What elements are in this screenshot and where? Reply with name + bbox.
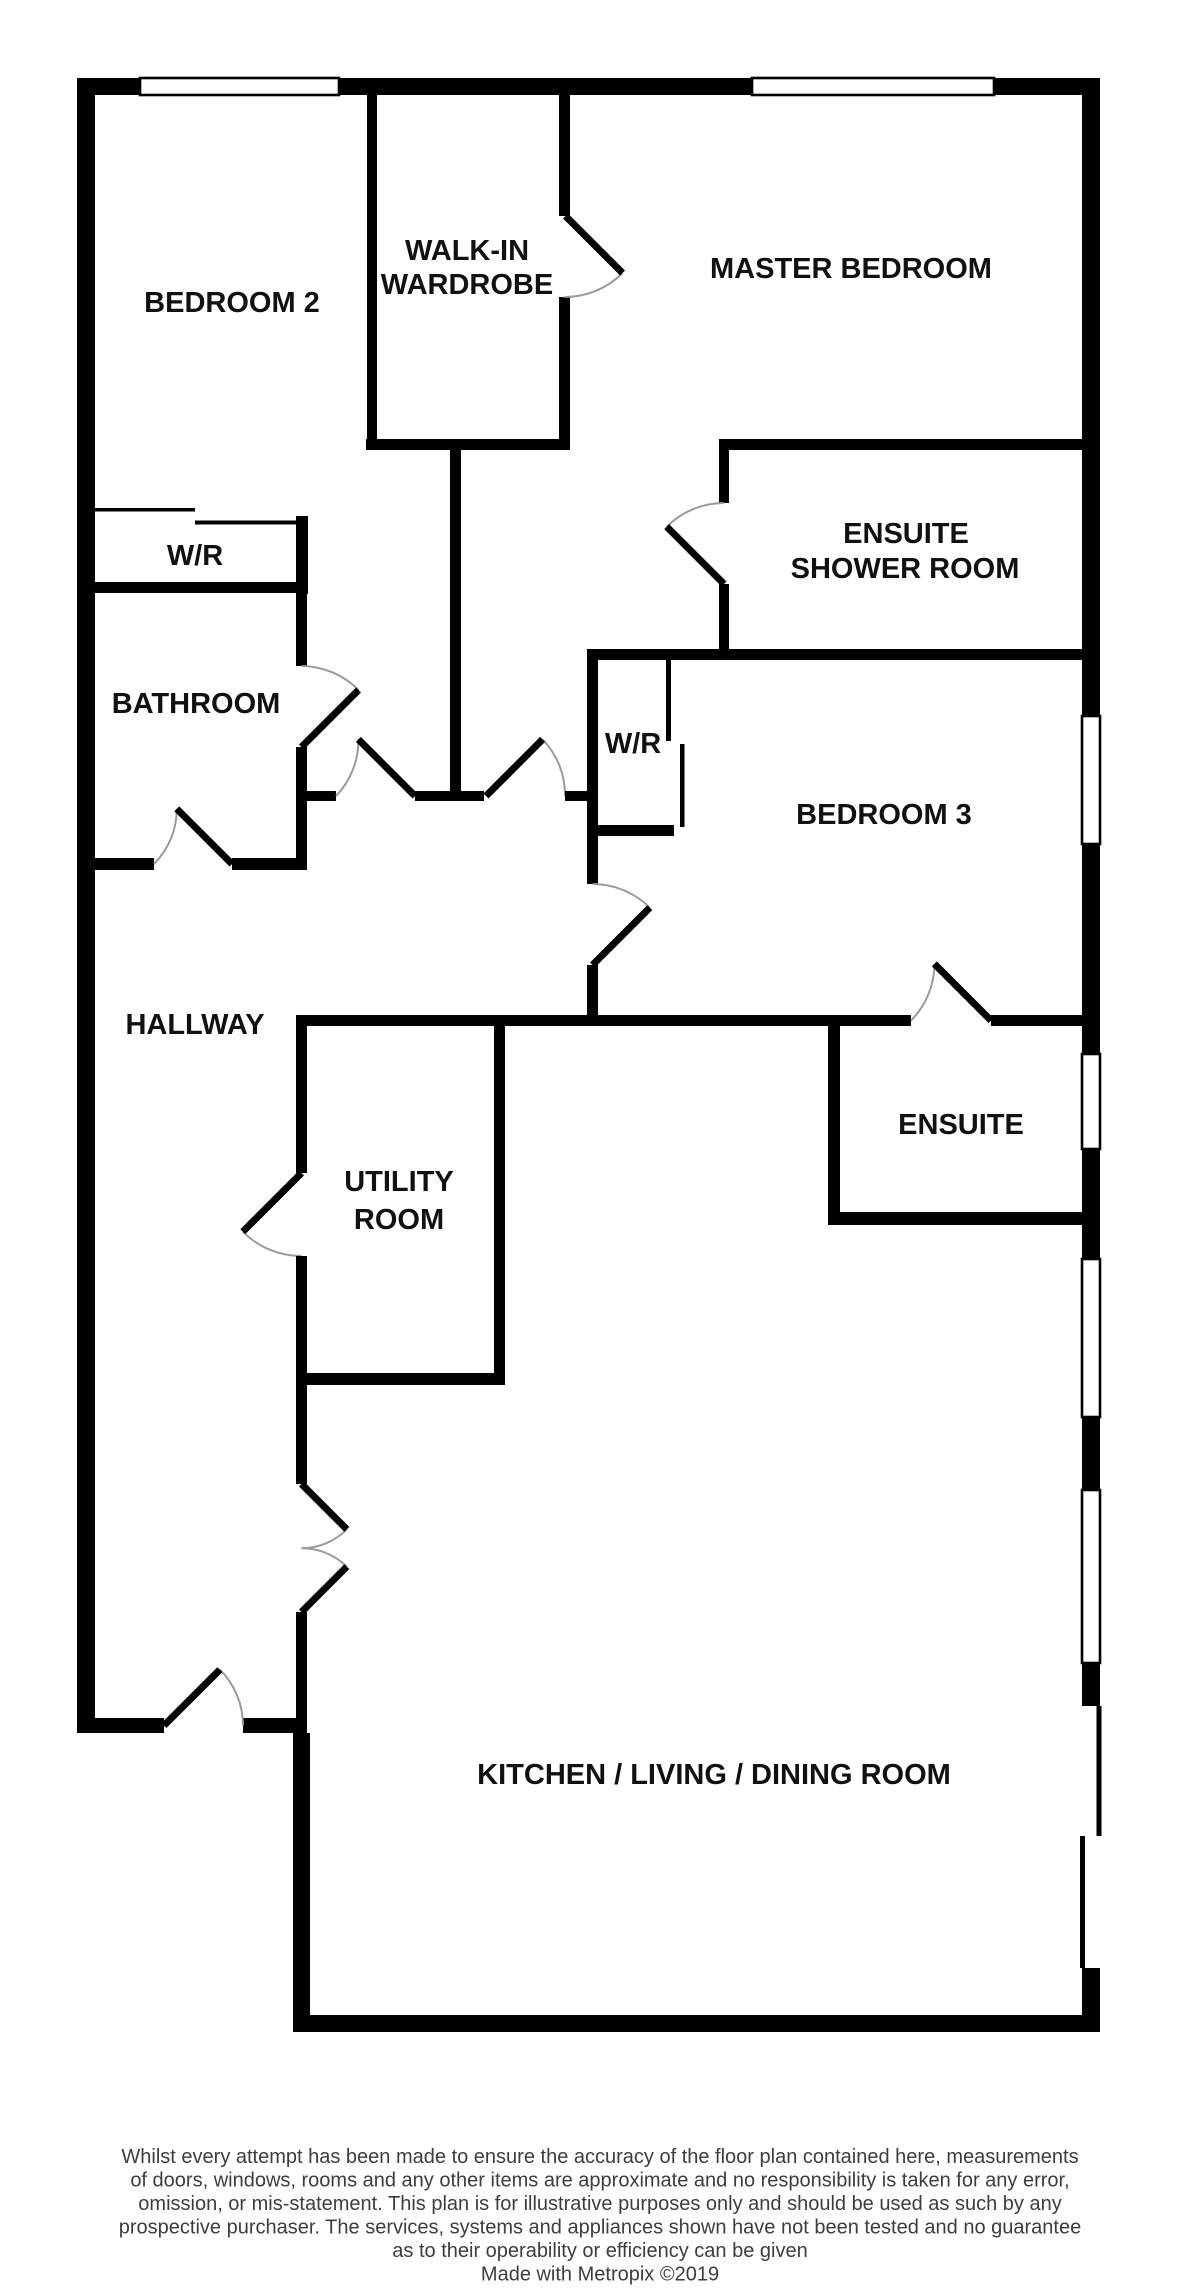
svg-text:UTILITY: UTILITY: [344, 1166, 454, 1198]
svg-text:ROOM: ROOM: [354, 1204, 444, 1236]
svg-text:prospective purchaser. The ser: prospective purchaser. The services, sys…: [119, 2217, 1081, 2239]
svg-text:WARDROBE: WARDROBE: [381, 269, 553, 301]
svg-text:W/R: W/R: [605, 728, 661, 760]
svg-text:omission, or mis-statement. Th: omission, or mis-statement. This plan is…: [138, 2193, 1061, 2215]
svg-text:BEDROOM 2: BEDROOM 2: [144, 287, 320, 319]
svg-text:BEDROOM 3: BEDROOM 3: [796, 799, 972, 831]
svg-text:WALK-IN: WALK-IN: [405, 235, 529, 267]
svg-text:ENSUITE: ENSUITE: [843, 518, 969, 550]
svg-text:BATHROOM: BATHROOM: [112, 688, 281, 720]
svg-text:Whilst every attempt has been: Whilst every attempt has been made to en…: [121, 2146, 1078, 2168]
svg-text:W/R: W/R: [167, 540, 223, 572]
svg-text:MASTER BEDROOM: MASTER BEDROOM: [710, 253, 992, 285]
svg-text:HALLWAY: HALLWAY: [125, 1009, 264, 1041]
svg-text:Made with Metropix ©2019: Made with Metropix ©2019: [481, 2264, 719, 2286]
svg-text:SHOWER ROOM: SHOWER ROOM: [791, 553, 1020, 585]
svg-text:of doors, windows, rooms and a: of doors, windows, rooms and any other i…: [130, 2170, 1069, 2192]
svg-text:ENSUITE: ENSUITE: [898, 1109, 1024, 1141]
svg-text:KITCHEN / LIVING / DINING ROOM: KITCHEN / LIVING / DINING ROOM: [477, 1759, 951, 1791]
svg-text:as to their operability or eff: as to their operability or efficiency ca…: [392, 2240, 807, 2262]
